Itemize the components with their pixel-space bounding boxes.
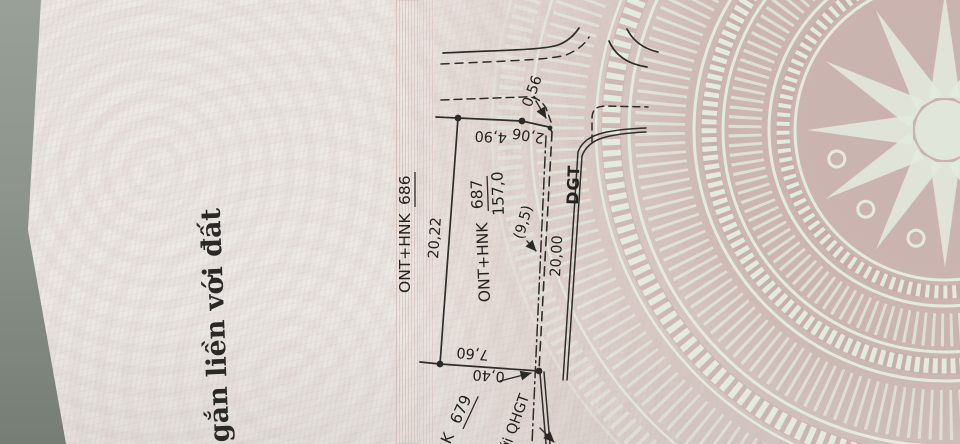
- dong-son-drum-emblem: [492, 0, 960, 444]
- dimension-bottom-corner: 0,40: [472, 366, 505, 384]
- leader-arrow-bottom-partial: [540, 428, 554, 442]
- parcel-687-number: 687: [468, 179, 487, 209]
- parcel-679-code-fragment: K: [437, 429, 458, 444]
- planning-boundary-label: ới QHGT: [498, 392, 533, 444]
- cadastral-sketch-overlay: 20,22 4,90 2,06 0,56 20,00 (9,5) 7,60 0,…: [0, 0, 960, 444]
- certificate-title-fragment: gắn liền với đất: [194, 207, 236, 443]
- dimension-bottom-edge: 7,60: [456, 344, 490, 363]
- parcel-679-label: K 679: [437, 388, 478, 444]
- dimension-right-edge: 20,00: [548, 235, 566, 277]
- emblem-center: [915, 100, 960, 160]
- dimension-left-edge: 20,22: [426, 217, 445, 260]
- parcel-686-number: 686: [396, 175, 414, 205]
- sketch-labels: 20,22 4,90 2,06 0,56 20,00 (9,5) 7,60 0,…: [194, 74, 584, 444]
- parcel-687-code: ONT+HNK: [473, 221, 494, 302]
- road-land-label: DGT: [563, 164, 583, 205]
- land-certificate-photo: 20,22 4,90 2,06 0,56 20,00 (9,5) 7,60 0,…: [0, 0, 960, 444]
- parcel-686-code: ONT+HNK: [396, 212, 414, 293]
- dimension-top-1: 4,90: [474, 127, 507, 145]
- parcel-679-number: 679: [447, 392, 476, 426]
- parcel-687-area: 157,0: [488, 171, 508, 216]
- parcel-686-label: ONT+HNK 686: [396, 172, 415, 293]
